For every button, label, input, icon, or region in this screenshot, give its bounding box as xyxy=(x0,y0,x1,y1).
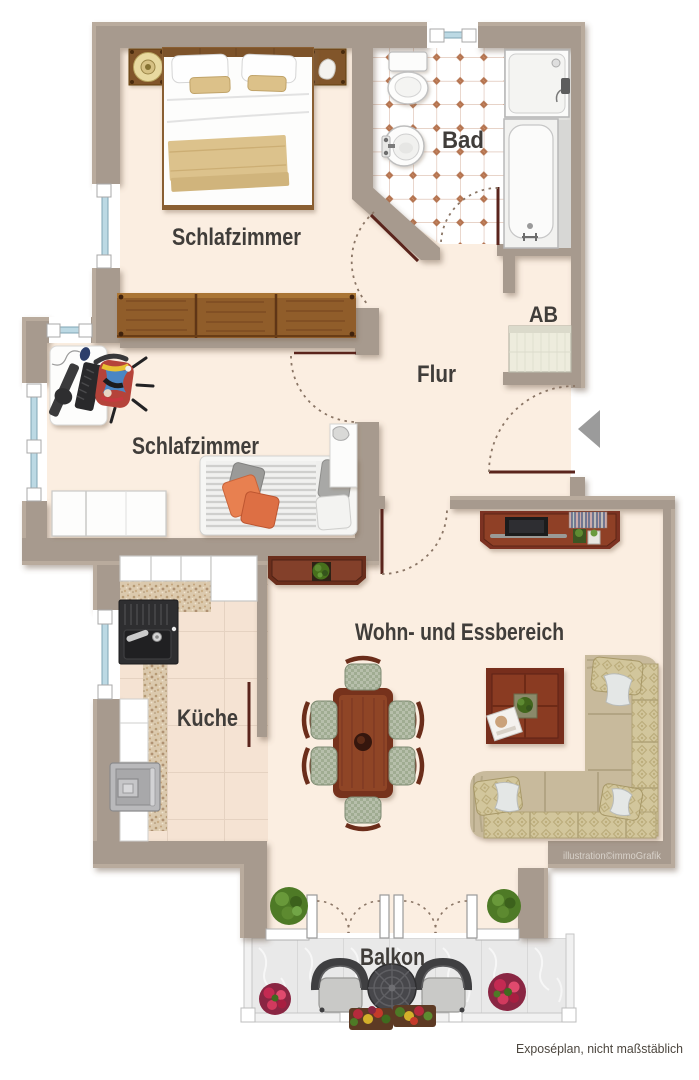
svg-text:AB: AB xyxy=(529,302,558,327)
svg-text:Schlafzimmer: Schlafzimmer xyxy=(172,224,301,251)
svg-text:Schlafzimmer: Schlafzimmer xyxy=(132,433,259,460)
svg-text:illustration©immoGrafik: illustration©immoGrafik xyxy=(563,850,662,862)
svg-text:Balkon: Balkon xyxy=(360,944,425,971)
svg-text:Exposéplan, nicht maßstäblich: Exposéplan, nicht maßstäblich xyxy=(516,1042,683,1056)
svg-text:Flur: Flur xyxy=(417,361,456,388)
svg-text:Bad: Bad xyxy=(442,127,484,154)
svg-text:Küche: Küche xyxy=(177,705,238,732)
svg-text:Wohn- und Essbereich: Wohn- und Essbereich xyxy=(355,619,564,646)
